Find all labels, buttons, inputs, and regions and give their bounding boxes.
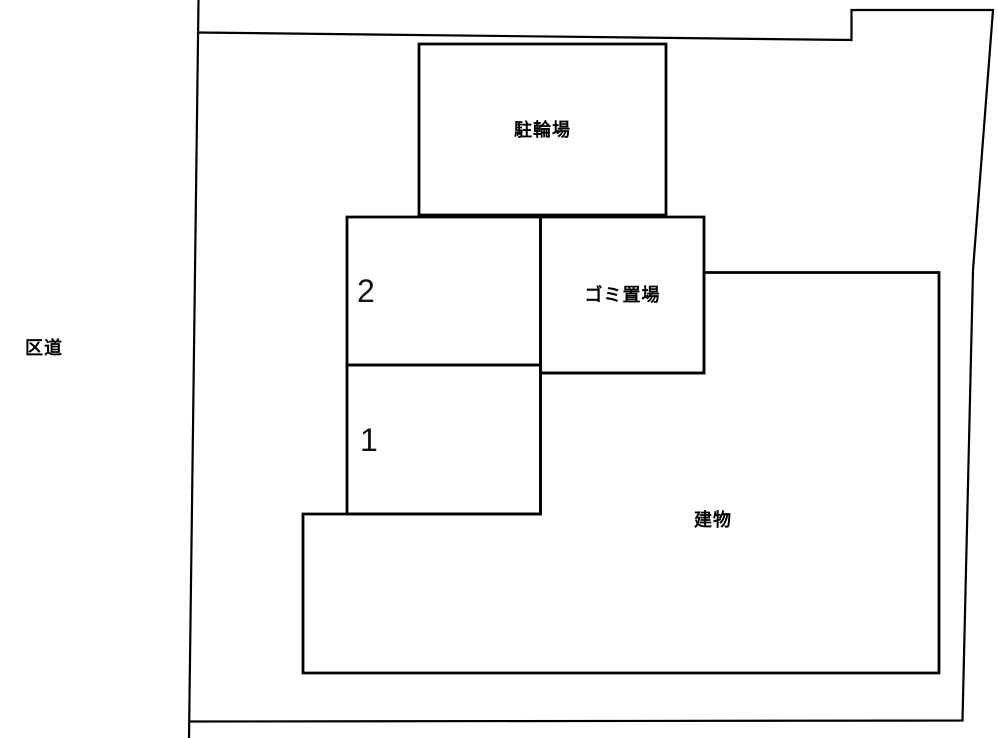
bicycle-parking-outline bbox=[419, 44, 666, 215]
site-boundary bbox=[190, 10, 993, 722]
parking-space-2-outline bbox=[347, 217, 541, 365]
building-outline bbox=[303, 273, 939, 674]
garbage-area-outline bbox=[541, 217, 705, 373]
site-plan-drawing bbox=[0, 0, 998, 738]
road-edge-line bbox=[189, 0, 199, 738]
parking-space-1-outline bbox=[347, 365, 541, 514]
site-plan: 区道 駐輪場 2 1 ゴミ置場 建物 bbox=[0, 0, 998, 738]
